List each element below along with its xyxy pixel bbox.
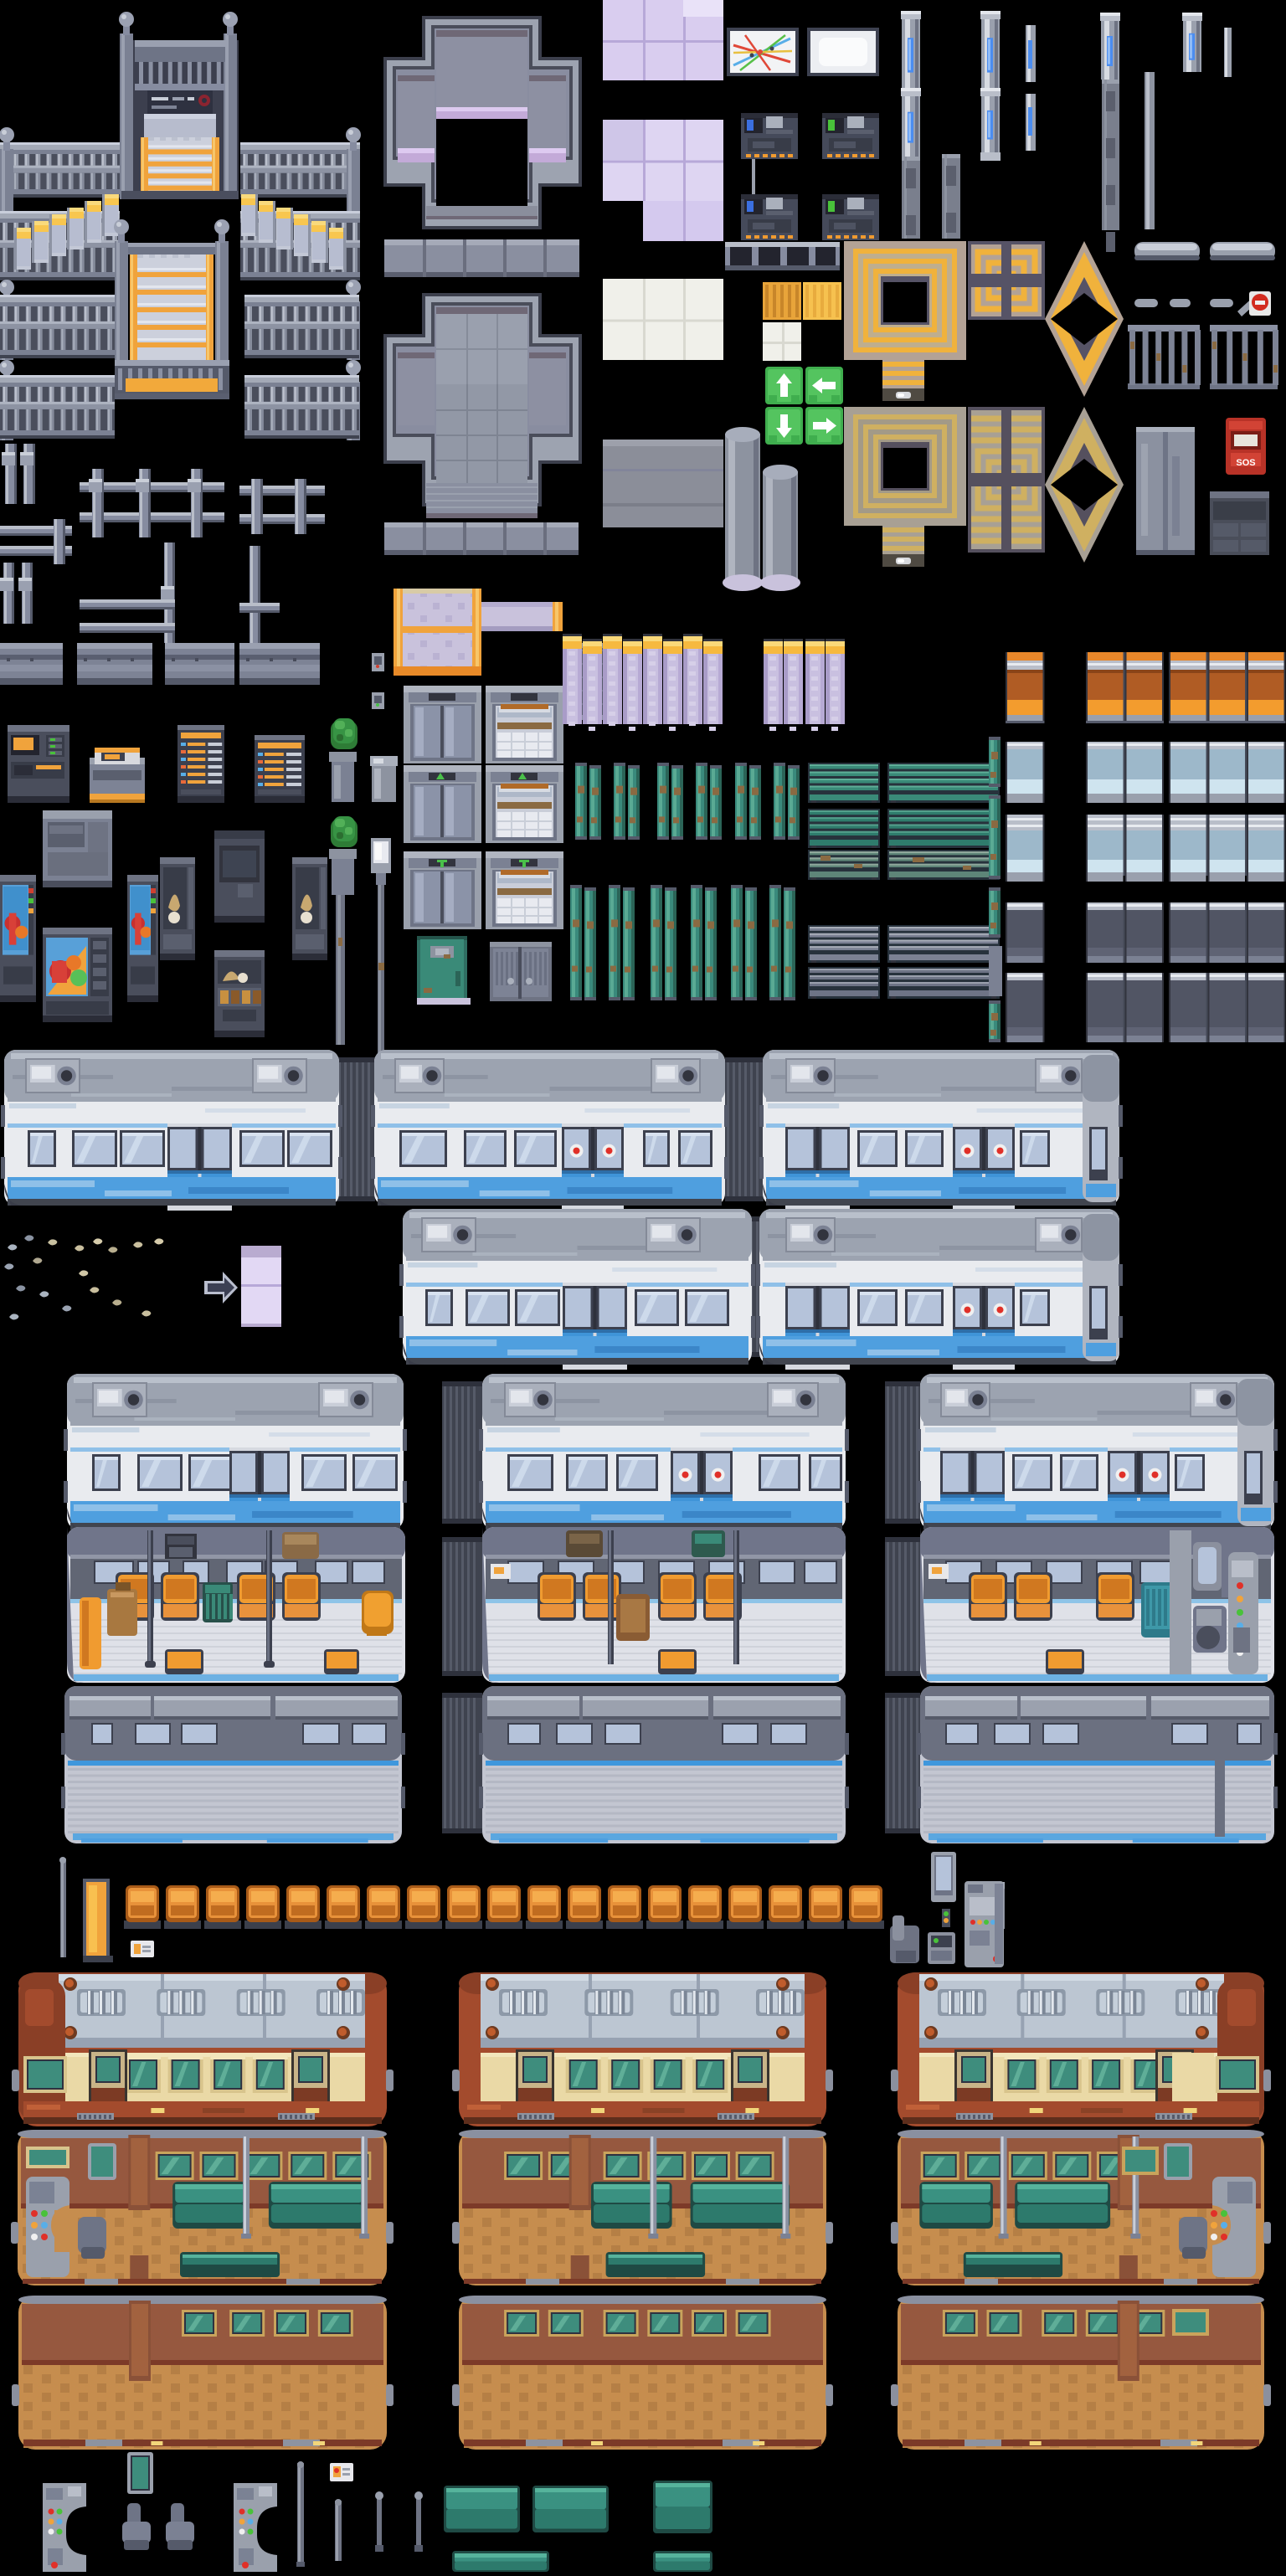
svg-text:SOS: SOS: [1236, 458, 1255, 468]
